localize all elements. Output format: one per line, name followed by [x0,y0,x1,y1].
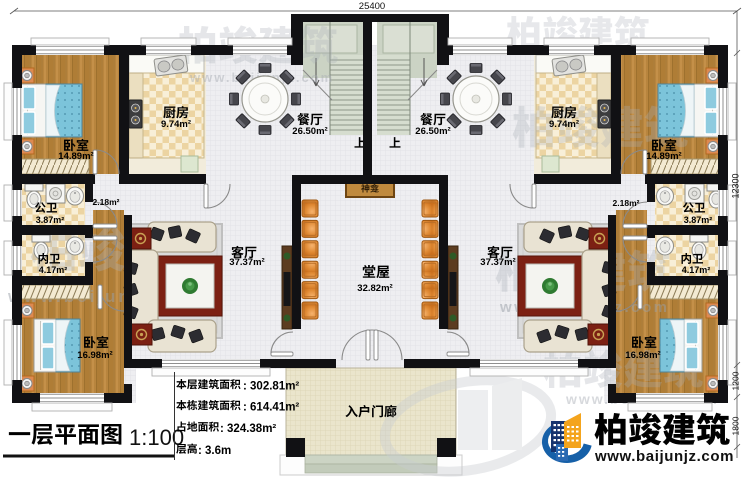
svg-text:9.74m²: 9.74m² [161,119,191,130]
svg-text:14.89m²: 14.89m² [58,151,93,162]
svg-text:3.87m²: 3.87m² [36,215,65,225]
svg-text:26.50m²: 26.50m² [415,126,450,137]
svg-text:1:100: 1:100 [129,425,184,450]
svg-text:16.98m²: 16.98m² [625,350,660,361]
svg-text:1800: 1800 [731,416,741,435]
svg-text:4.17m²: 4.17m² [39,265,68,275]
svg-text:: 324.38m²: : 324.38m² [220,423,276,435]
svg-text:4.17m²: 4.17m² [682,265,711,275]
svg-text:26.50m²: 26.50m² [292,126,327,137]
svg-text:14.89m²: 14.89m² [646,151,681,162]
svg-text:32.82m²: 32.82m² [357,283,392,294]
svg-text:: 3.6m: : 3.6m [198,445,231,457]
svg-text:: 614.41m²: : 614.41m² [243,402,299,414]
svg-text:9.74m²: 9.74m² [549,119,579,130]
svg-text:2.18m²: 2.18m² [93,197,120,207]
svg-text:16.98m²: 16.98m² [77,350,112,361]
svg-text:2.18m²: 2.18m² [613,198,640,208]
svg-text:12300: 12300 [731,173,741,198]
svg-text:37.37m²: 37.37m² [229,257,264,268]
svg-text:25400: 25400 [359,1,385,12]
svg-text:37.37m²: 37.37m² [480,257,515,268]
svg-text:www.baijunjz.com: www.baijunjz.com [594,448,734,465]
svg-text:: 302.81m²: : 302.81m² [243,381,299,393]
svg-text:1200: 1200 [731,371,741,390]
svg-text:3.87m²: 3.87m² [684,215,713,225]
